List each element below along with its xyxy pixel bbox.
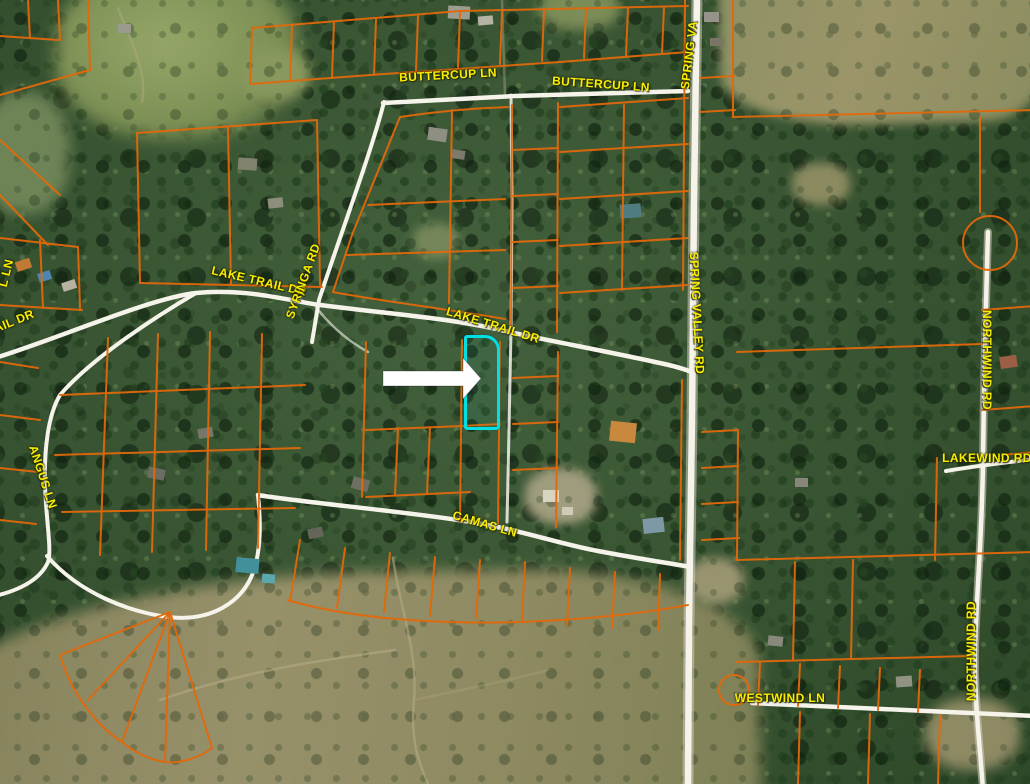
road-label-westwind: WESTWIND LN	[735, 692, 825, 704]
highlighted-parcel[interactable]	[464, 335, 500, 430]
aerial-parcel-map[interactable]: BUTTERCUP LN BUTTERCUP LN SPRING VA LAKE…	[0, 0, 1030, 784]
road-angus	[0, 293, 196, 596]
road-label-northwind-upper: NORTHWIND RD	[981, 310, 993, 410]
road-camas	[258, 495, 691, 567]
parcel-boundaries	[0, 0, 1030, 784]
road-label-northwind-lower: NORTHWIND RD	[965, 601, 977, 701]
map-overlay	[0, 0, 1030, 784]
building-footprints	[15, 5, 1018, 687]
road-label-lakewind: LAKEWIND RD	[942, 452, 1030, 464]
road-syringa-south	[316, 307, 368, 352]
road-lake-trail	[0, 292, 694, 373]
